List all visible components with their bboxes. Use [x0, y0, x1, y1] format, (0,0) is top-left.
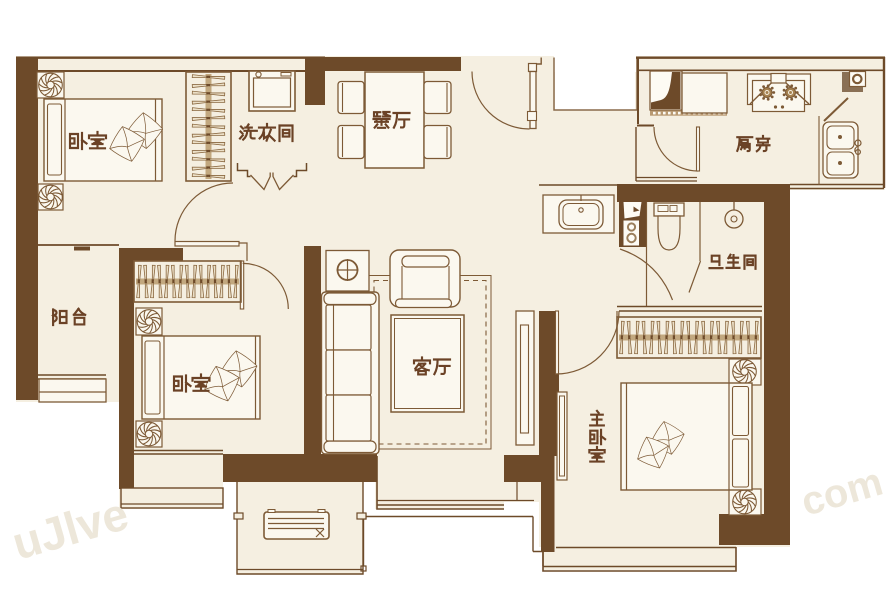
svg-text:com: com	[796, 460, 887, 525]
svg-text:uJlve: uJlve	[6, 487, 133, 569]
